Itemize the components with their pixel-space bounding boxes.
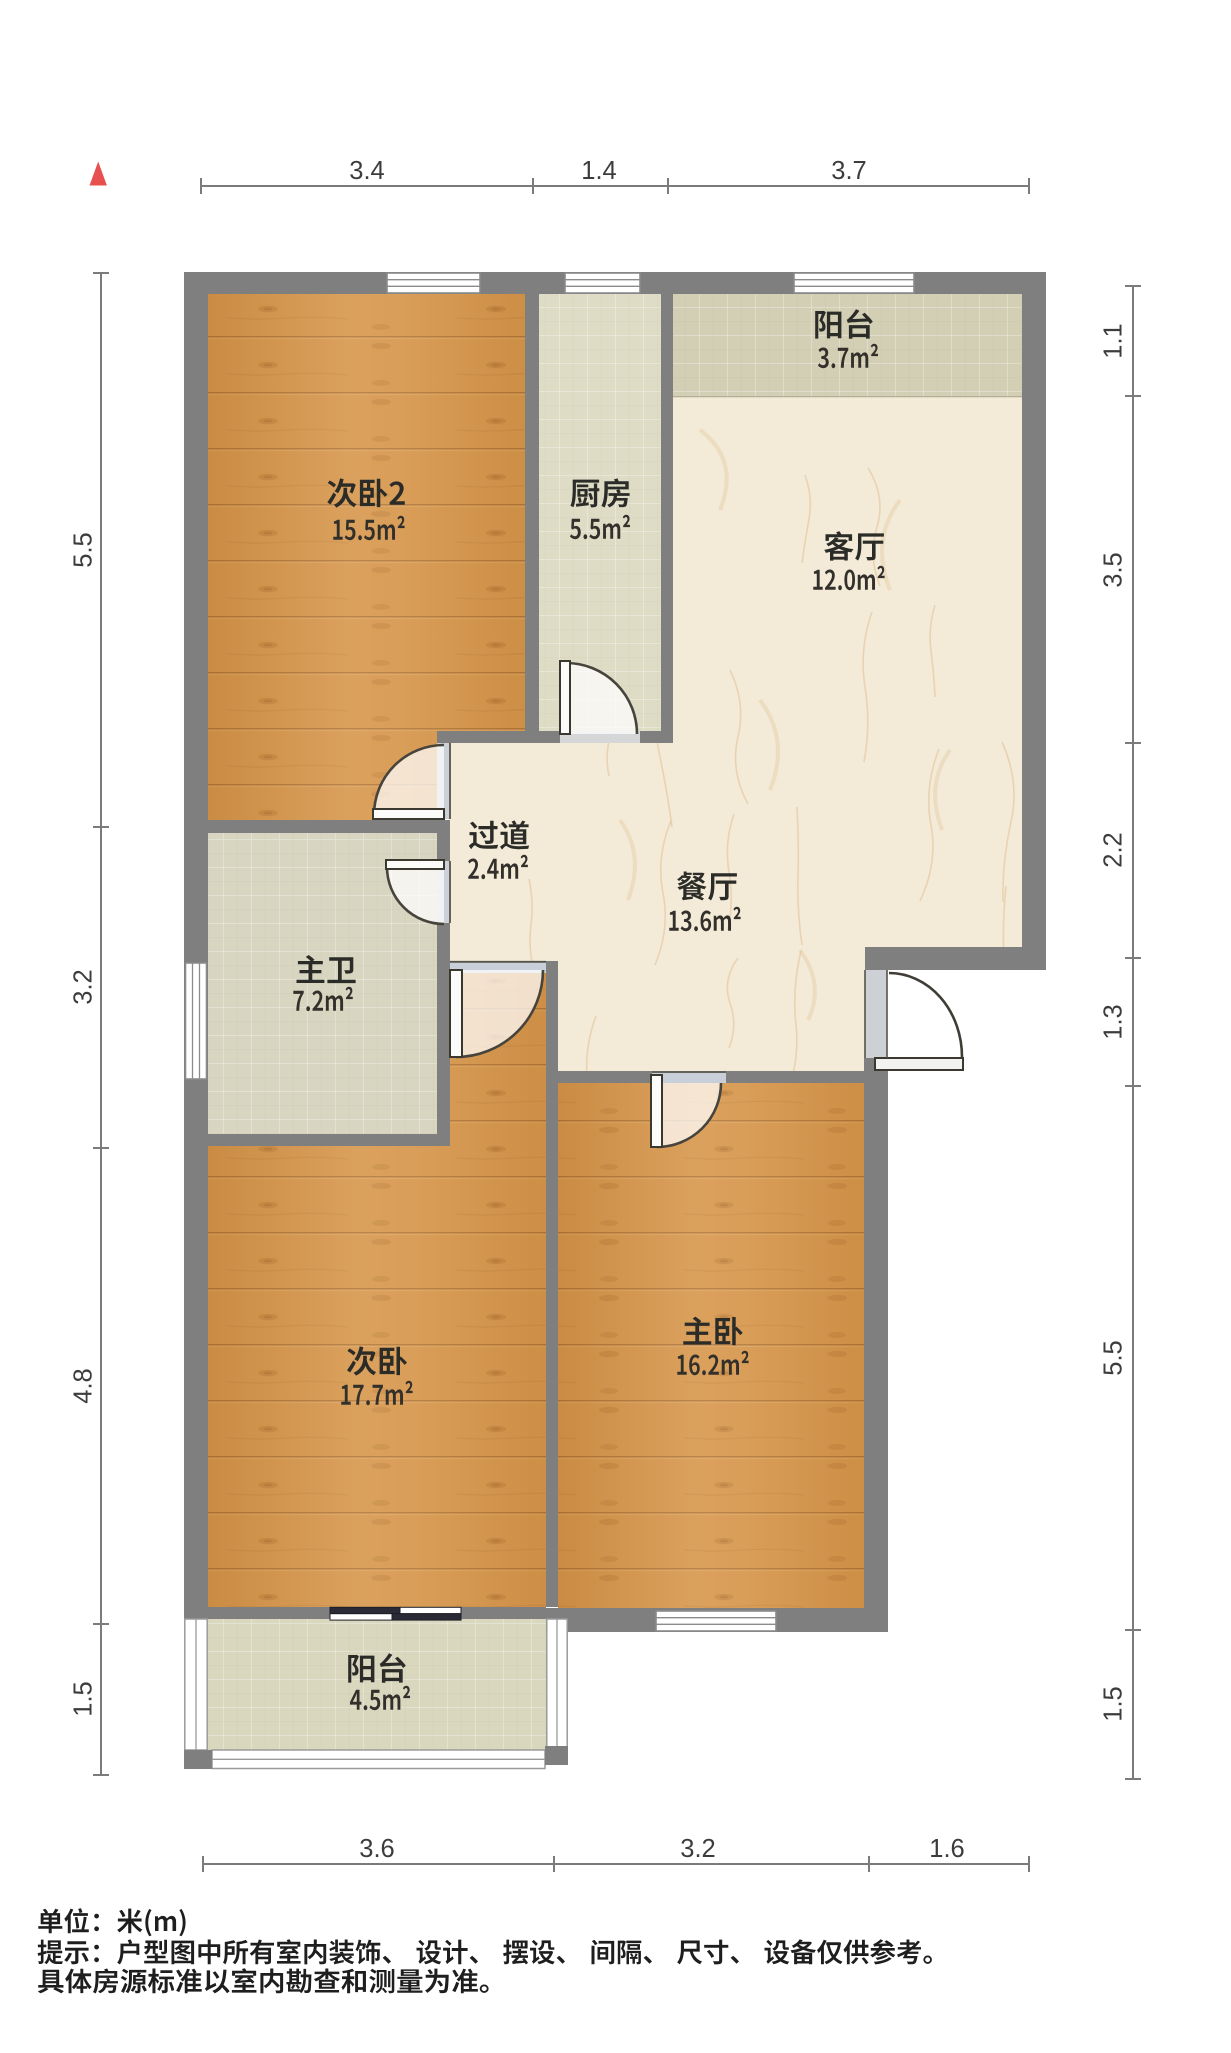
svg-text:3.4: 3.4 — [349, 157, 384, 185]
svg-text:5.5: 5.5 — [70, 532, 98, 567]
svg-text:1.1: 1.1 — [1100, 323, 1128, 358]
svg-text:1.3: 1.3 — [1100, 1004, 1128, 1039]
svg-text:3.5: 3.5 — [1100, 552, 1128, 587]
svg-text:1.6: 1.6 — [929, 1835, 964, 1863]
svg-text:1.4: 1.4 — [581, 157, 616, 185]
svg-text:3.2: 3.2 — [70, 969, 98, 1004]
svg-text:3.2: 3.2 — [680, 1835, 715, 1863]
svg-text:3.6: 3.6 — [359, 1835, 394, 1863]
svg-text:1.5: 1.5 — [1100, 1686, 1128, 1721]
svg-text:1.5: 1.5 — [70, 1681, 98, 1716]
svg-text:4.8: 4.8 — [70, 1368, 98, 1403]
svg-text:2.2: 2.2 — [1100, 832, 1128, 867]
svg-text:5.5: 5.5 — [1100, 1340, 1128, 1375]
svg-text:3.7: 3.7 — [831, 157, 866, 185]
